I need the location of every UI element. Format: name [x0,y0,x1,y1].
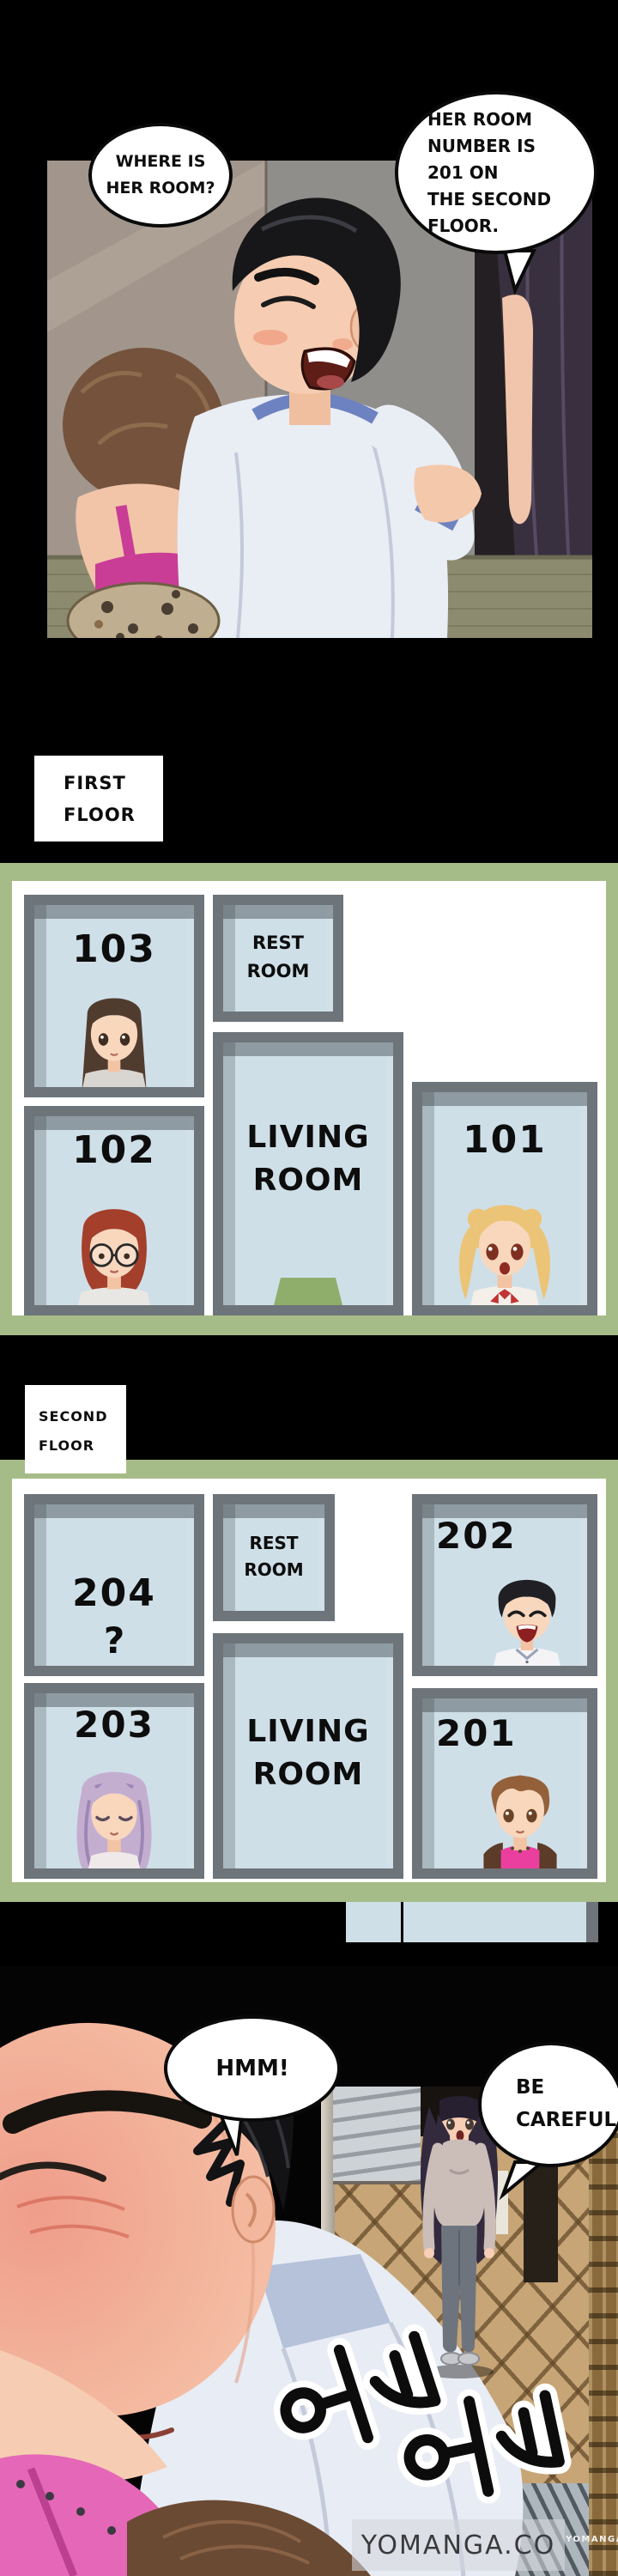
rest-room-first-label: REST ROOM [223,929,333,985]
rest-room-second-label: REST ROOM [223,1530,324,1583]
resident-201-portrait [472,1759,568,1872]
room-201: 201 [412,1688,597,1879]
rest-room-first: REST ROOM [213,895,343,1022]
living-room-second: LIVING ROOM [213,1633,403,1879]
watermark-box: YOMANGA.CO [352,2519,565,2571]
resident-202-portrait [482,1564,572,1669]
comic-page: WHERE IS HER ROOM? HER ROOM NUMBER IS 20… [0,0,618,2576]
sfx-thud-1: 쿵 [0,1966,1,1967]
room-number-202: 202 [436,1515,517,1557]
room-101: 101 [412,1082,597,1315]
door-mat [274,1278,342,1305]
sfx-thud-2: 쿵 [0,1966,1,1967]
plan-second-floor: 204 ? 203 REST ROOM [0,1460,618,1902]
room-number-203: 203 [34,1704,194,1746]
resident-102-portrait [64,1197,164,1309]
room-203: 203 [24,1683,204,1879]
resident-101-portrait [451,1190,558,1309]
sfx-thud-2-glyph [422,2363,551,2526]
resident-203-portrait [63,1762,166,1872]
room-number-101: 101 [422,1118,587,1162]
room-202: 202 [412,1494,597,1676]
speech-bubble-be-careful: BE CAREFUL [478,2042,618,2167]
floor-label-first: FIRST FLOOR [34,756,163,841]
living-room-second-label: LIVING ROOM [223,1710,393,1797]
room-102: 102 [24,1106,204,1315]
living-room-first-label: LIVING ROOM [223,1116,393,1203]
room-103: 103 [24,895,204,1097]
rest-room-second: REST ROOM [213,1494,335,1621]
room-204: 204 ? [24,1494,204,1676]
speech-bubble-room-number: HER ROOM NUMBER IS 201 ON THE SECOND FLO… [395,91,597,254]
floor-label-second: SECOND FLOOR [25,1385,126,1473]
room-number-102: 102 [34,1128,194,1172]
room-204-unknown-mark: ? [34,1619,194,1662]
watermark-small: YOMANGA [566,2535,618,2544]
living-room-first: LIVING ROOM [213,1032,403,1315]
room-number-201: 201 [436,1712,517,1754]
speech-bubble-where: WHERE IS HER ROOM? [88,123,233,228]
panel-hallway-scene: HMM! BE CAREFUL 쿵 [0,1966,618,2576]
speech-bubble-hmm: HMM! [164,2015,341,2122]
plan-first-floor: 103 102 [0,863,618,1335]
room-number-204: 204 [34,1571,194,1615]
resident-103-portrait [66,987,162,1091]
room-number-103: 103 [34,927,194,971]
bubble-tail-room-number [501,249,539,294]
